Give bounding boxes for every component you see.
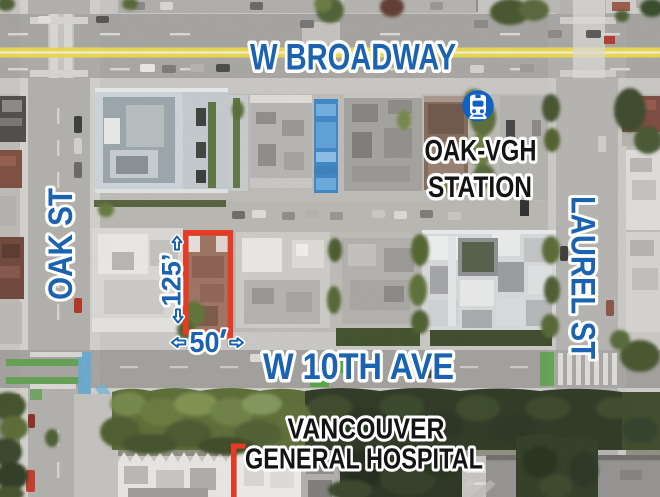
svg-text:125’: 125’ <box>157 254 187 307</box>
svg-text:LAUREL ST: LAUREL ST <box>564 196 602 359</box>
svg-text:OAK-VGH: OAK-VGH <box>425 135 537 168</box>
svg-text:W BROADWAY: W BROADWAY <box>250 37 456 78</box>
svg-text:GENERAL HOSPITAL: GENERAL HOSPITAL <box>245 444 483 476</box>
svg-text:VANCOUVER: VANCOUVER <box>288 414 445 446</box>
svg-text:OAK ST: OAK ST <box>42 188 80 300</box>
svg-text:50: 50 <box>190 327 220 359</box>
svg-text:W 10TH AVE: W 10TH AVE <box>263 346 454 387</box>
svg-text:STATION: STATION <box>428 171 532 204</box>
